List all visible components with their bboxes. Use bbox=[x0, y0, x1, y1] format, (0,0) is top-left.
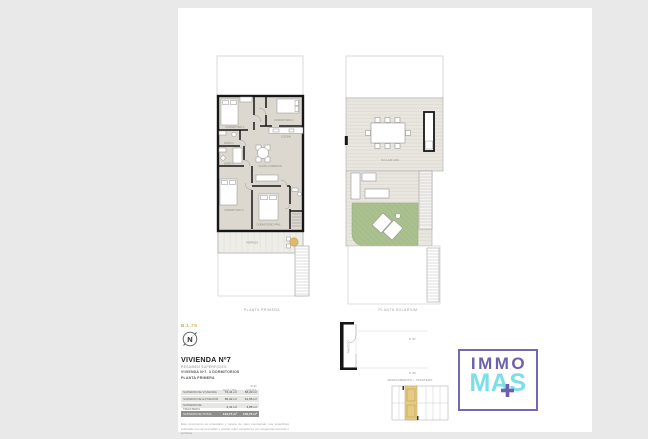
total-util: 134,74 m² bbox=[219, 412, 239, 416]
floor-plan-first-svg: DORMITORIO 1 DORMITORIO 2 BAÑO 1 BAÑO 2 … bbox=[210, 53, 314, 305]
subtitle-resumen: RESUMEN SUPERFICIES bbox=[181, 365, 293, 369]
room-label-bedroom-main: DORMITORIO PPAL. bbox=[257, 223, 282, 227]
level-label-p07: P. 07 bbox=[409, 337, 416, 341]
bed-symbol-2 bbox=[277, 99, 299, 113]
solarium-label: SOLARIUM bbox=[381, 158, 399, 162]
caption-planta-solarium: PLANTA SOLARIUM bbox=[340, 308, 456, 312]
courtyard-outline bbox=[217, 56, 303, 98]
total-label: SUPERFICIE TOTAL bbox=[181, 412, 219, 416]
row-util: 60,02 m² bbox=[219, 397, 239, 401]
areas-table: SUP. ÚTIL SUP. CONST. SUPERFICIE VIVIEND… bbox=[181, 384, 259, 418]
trastero-detail: TRASTERO bbox=[340, 322, 357, 370]
plan-sheet: DORMITORIO 1 DORMITORIO 2 BAÑO 1 BAÑO 2 … bbox=[178, 8, 592, 432]
trastero-label: TRASTERO bbox=[348, 340, 351, 353]
canvas-background: DORMITORIO 1 DORMITORIO 2 BAÑO 1 BAÑO 2 … bbox=[0, 0, 648, 439]
subtitle-dwelling: VIVIENDA Nº7. 3 DORMITORIOS bbox=[181, 370, 293, 374]
table-row: SUPERFICIE VIVIENDA 72,41 m² 83,20 m² bbox=[181, 390, 259, 396]
row-label: SUPERFICIE EXTERIOR bbox=[181, 397, 219, 401]
solarium-lower-outline bbox=[348, 246, 440, 304]
table-row: SUPERFICIE TRASTERO 2,31 m² 3,85 m² bbox=[181, 403, 259, 409]
bed-symbol-1 bbox=[221, 99, 238, 125]
subtitle-floor: PLANTA PRIMERA bbox=[181, 376, 293, 380]
room-label-terrace: TERRAZA bbox=[246, 241, 258, 245]
table-row: SUPERFICIE EXTERIOR 60,02 m² 61,65 m² bbox=[181, 396, 259, 402]
room-label-bedroom3: DORMITORIO 3 bbox=[225, 208, 245, 212]
room-label-bedroom2: DORMITORIO 2 bbox=[275, 118, 295, 122]
compass-icon: N bbox=[181, 330, 199, 348]
floor-plan-solarium-svg: SOLARIUM bbox=[340, 53, 456, 305]
section-detail-svg: TRASTERO P. 07 P. 06 APARCAMIENTO + TRAS… bbox=[330, 316, 450, 426]
plus-icon bbox=[501, 384, 514, 397]
bed-symbol-3 bbox=[220, 179, 237, 205]
solarium-stair bbox=[419, 171, 432, 229]
compass-north-letter: N bbox=[187, 335, 192, 344]
row-const: 61,65 m² bbox=[239, 397, 259, 401]
sofa-symbol bbox=[256, 175, 278, 181]
room-label-bedroom1: DORMITORIO 1 bbox=[226, 125, 246, 129]
wall-jamb bbox=[345, 136, 348, 145]
logo-box: IMMO MAS bbox=[458, 349, 538, 411]
row-const: 83,20 m² bbox=[239, 390, 259, 394]
parking-key-plan bbox=[392, 386, 448, 420]
row-util: 72,41 m² bbox=[219, 390, 239, 394]
level-lines bbox=[358, 331, 428, 368]
lower-ladder bbox=[427, 248, 439, 302]
caption-planta-primera: PLANTA PRIMERA bbox=[210, 308, 314, 312]
table-total-row: SUPERFICIE TOTAL 134,74 m² 148,70 m² bbox=[181, 411, 259, 417]
row-const: 3,85 m² bbox=[239, 405, 259, 409]
row-util: 2,31 m² bbox=[219, 405, 239, 409]
logo-word-mas: MAS bbox=[460, 372, 536, 396]
bed-symbol-main bbox=[259, 194, 278, 220]
room-label-kitchen: COCINA bbox=[281, 135, 291, 139]
total-const: 148,70 m² bbox=[239, 412, 259, 416]
wardrobe-symbol bbox=[240, 97, 252, 102]
exterior-stair bbox=[295, 246, 309, 296]
disclaimer-paragraph-1: Este documento es orientativo y carece d… bbox=[181, 422, 289, 435]
dwelling-title: VIVIENDA Nº7 bbox=[181, 355, 293, 364]
solarium-courtyard-outline bbox=[346, 56, 443, 98]
legal-disclaimer: Este documento es orientativo y carece d… bbox=[181, 422, 289, 439]
highlighted-parking-unit bbox=[405, 386, 417, 420]
row-label: SUPERFICIE VIVIENDA bbox=[181, 390, 219, 394]
kitchen-counter bbox=[269, 128, 303, 134]
row-label: SUPERFICIE TRASTERO bbox=[181, 403, 219, 411]
stair-shaft bbox=[424, 112, 434, 151]
parking-caption: APARCAMIENTO + TRASTERO bbox=[387, 378, 433, 382]
areas-table-header: SUP. ÚTIL SUP. CONST. bbox=[181, 384, 259, 389]
plan-reference: B.1.7S bbox=[181, 323, 293, 328]
terrace bbox=[218, 231, 303, 253]
title-block: B.1.7S N VIVIENDA Nº7 RESUMEN SUPERFICIE… bbox=[181, 323, 293, 439]
level-label-p06: P. 06 bbox=[409, 371, 416, 375]
terrace-table-symbol bbox=[290, 238, 298, 246]
